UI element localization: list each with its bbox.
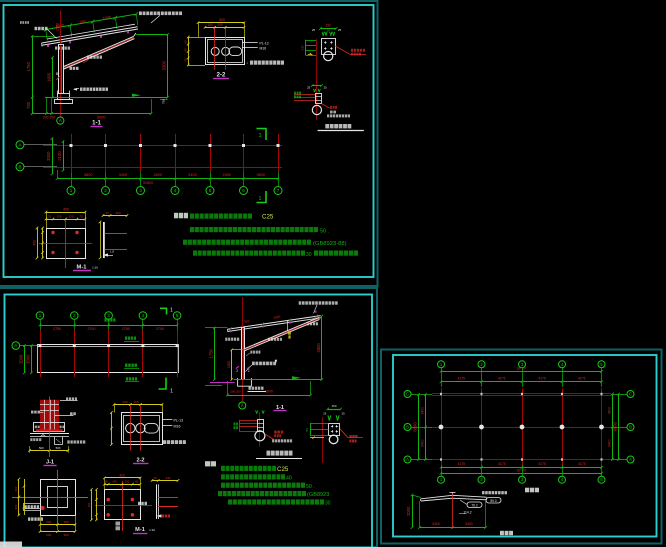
svg-text:114.2: 114.2 [463, 511, 471, 515]
svg-text:300: 300 [46, 520, 51, 524]
svg-text:4175: 4175 [578, 377, 586, 381]
svg-text:2: 2 [480, 362, 483, 367]
svg-text:2700: 2700 [156, 327, 164, 331]
svg-text:3300: 3300 [316, 342, 321, 352]
svg-text:200 200: 200 200 [43, 115, 55, 119]
svg-text:1000: 1000 [102, 15, 111, 20]
svg-text:(GB8923: (GB8923 [307, 492, 329, 498]
svg-text:950: 950 [79, 19, 86, 24]
svg-text:140: 140 [112, 480, 117, 484]
svg-text:4175: 4175 [538, 462, 546, 466]
svg-text:6800: 6800 [413, 422, 418, 432]
svg-text:3300: 3300 [46, 151, 51, 161]
svg-text:25: 25 [323, 412, 327, 416]
svg-text:C: C [406, 391, 409, 396]
svg-text:2: 2 [236, 369, 238, 373]
svg-text:5: 5 [209, 188, 212, 193]
svg-text:3400: 3400 [421, 439, 425, 447]
svg-text:1: 1 [39, 313, 42, 318]
svg-text:60: 60 [184, 40, 188, 44]
svg-text:A: A [406, 457, 409, 462]
svg-text:3800: 3800 [257, 173, 265, 177]
svg-text:1: 1 [440, 477, 443, 482]
svg-text:500: 500 [39, 446, 44, 450]
svg-text:(GB8923-88): (GB8923-88) [313, 241, 347, 247]
svg-text:40: 40 [105, 211, 109, 215]
svg-text:2: 2 [73, 313, 76, 318]
svg-text:1: 1 [70, 188, 73, 193]
svg-text:2800: 2800 [154, 173, 162, 177]
svg-text:4: 4 [561, 362, 564, 367]
svg-text:70: 70 [48, 214, 52, 218]
svg-text:30: 30 [325, 501, 331, 507]
svg-text:C: C [629, 391, 632, 396]
svg-text:2-2: 2-2 [136, 457, 144, 463]
svg-text:100: 100 [122, 400, 127, 404]
svg-text:6800: 6800 [613, 421, 618, 431]
svg-text:16700: 16700 [516, 469, 526, 473]
svg-text:M16: M16 [260, 46, 267, 50]
svg-text:3400: 3400 [608, 407, 612, 415]
svg-text:2750: 2750 [53, 327, 61, 331]
svg-text:4: 4 [561, 477, 564, 482]
svg-text:300: 300 [64, 520, 69, 524]
svg-text:150: 150 [326, 23, 332, 27]
svg-text:125: 125 [68, 214, 73, 218]
svg-text:1.8: 1.8 [110, 250, 114, 254]
svg-text:1: 1 [440, 362, 443, 367]
svg-text:B: B [629, 424, 632, 429]
svg-text:2: 2 [480, 477, 483, 482]
svg-text:40: 40 [286, 476, 292, 482]
svg-text:PL-13: PL-13 [174, 419, 184, 423]
svg-text:B: B [18, 164, 21, 169]
svg-text:1: 1 [259, 196, 262, 202]
svg-text:600: 600 [64, 533, 69, 537]
svg-text:3300: 3300 [25, 354, 30, 364]
svg-text:31600: 31600 [143, 181, 154, 185]
svg-text:500: 500 [56, 446, 61, 450]
svg-text:60: 60 [184, 58, 188, 62]
svg-text:100: 100 [133, 400, 138, 404]
svg-text:1900: 1900 [227, 361, 231, 368]
svg-text:C25: C25 [262, 214, 274, 221]
svg-text:1: 1 [259, 133, 262, 139]
svg-text:7: 7 [277, 188, 280, 193]
svg-text:4175: 4175 [578, 462, 586, 466]
svg-text:A: A [59, 118, 62, 123]
svg-text:1750: 1750 [26, 61, 31, 71]
svg-text:2400: 2400 [188, 173, 196, 177]
svg-text:2-2: 2-2 [217, 73, 226, 79]
svg-text:B: B [406, 424, 409, 429]
svg-text:300: 300 [14, 486, 18, 491]
svg-text:M-1: M-1 [77, 264, 88, 270]
svg-text:4175: 4175 [538, 377, 546, 381]
svg-text:2100: 2100 [57, 151, 62, 161]
svg-text:70: 70 [79, 214, 83, 218]
svg-text:150: 150 [125, 480, 130, 484]
svg-text:3400: 3400 [608, 439, 612, 447]
svg-text:3000: 3000 [265, 390, 273, 394]
svg-text:M16: M16 [174, 425, 181, 429]
svg-text:3400: 3400 [465, 522, 473, 526]
svg-text:400: 400 [87, 502, 91, 507]
svg-text:4175: 4175 [457, 462, 465, 466]
svg-text:C25: C25 [277, 466, 289, 473]
svg-text:2: 2 [248, 369, 250, 373]
svg-text:300: 300 [14, 504, 18, 509]
svg-text:3: 3 [521, 477, 524, 482]
svg-text:25: 25 [338, 28, 342, 32]
svg-text:400: 400 [32, 240, 36, 246]
svg-text:2750: 2750 [122, 327, 130, 331]
svg-text:A: A [18, 142, 22, 147]
svg-text:J-1: J-1 [46, 459, 54, 465]
svg-text:25: 25 [324, 85, 328, 89]
svg-text:200 200: 200 200 [230, 389, 241, 393]
svg-text:2000: 2000 [18, 354, 23, 364]
svg-text:A: A [14, 343, 17, 348]
svg-text:1000: 1000 [273, 315, 281, 320]
svg-text:1500: 1500 [56, 23, 60, 31]
svg-text:100: 100 [217, 23, 223, 27]
svg-text:2400: 2400 [223, 173, 231, 177]
svg-text:4175: 4175 [457, 377, 465, 381]
svg-text:4: 4 [174, 188, 177, 193]
svg-text:3300: 3300 [161, 60, 166, 70]
svg-text:3400: 3400 [119, 173, 127, 177]
svg-text:140: 140 [166, 476, 171, 480]
svg-text:750: 750 [26, 101, 31, 109]
svg-text:1900: 1900 [46, 72, 51, 82]
svg-text:3400: 3400 [432, 522, 440, 526]
svg-text:25: 25 [312, 28, 316, 32]
svg-text:1:10: 1:10 [149, 528, 155, 532]
svg-text:125: 125 [56, 214, 61, 218]
svg-text:A: A [241, 403, 244, 408]
svg-text:3800: 3800 [84, 173, 92, 177]
svg-text:2: 2 [104, 188, 107, 193]
svg-text:600: 600 [46, 533, 51, 537]
svg-text:50 .: 50 . [306, 484, 315, 490]
svg-text:5: 5 [600, 477, 603, 482]
svg-text:6: 6 [242, 188, 245, 193]
svg-text:30: 30 [306, 252, 312, 258]
svg-text:3: 3 [139, 188, 142, 193]
svg-text:420: 420 [119, 473, 125, 477]
svg-text:3: 3 [107, 313, 110, 318]
svg-text:40: 40 [135, 480, 138, 484]
svg-text:1750: 1750 [208, 348, 213, 358]
svg-text:1: 1 [170, 389, 173, 395]
svg-text:M-1: M-1 [135, 527, 145, 533]
svg-text:750: 750 [162, 99, 166, 104]
svg-text:3400: 3400 [421, 407, 425, 415]
svg-text:4175: 4175 [498, 377, 506, 381]
svg-text:76.2: 76.2 [471, 503, 477, 507]
svg-text:1:10: 1:10 [92, 266, 98, 270]
svg-text:40: 40 [105, 480, 108, 484]
svg-text:25: 25 [342, 412, 346, 416]
svg-text:89.0: 89.0 [490, 499, 496, 503]
svg-text:A: A [629, 457, 632, 462]
svg-text:300: 300 [115, 211, 120, 215]
svg-text:1-1: 1-1 [92, 121, 101, 127]
svg-text:2700: 2700 [87, 327, 95, 331]
svg-text:30: 30 [153, 476, 157, 480]
svg-text:16700: 16700 [516, 367, 526, 371]
svg-text:50: 50 [305, 428, 309, 432]
svg-text:2000: 2000 [406, 506, 411, 516]
svg-text:25: 25 [307, 85, 311, 89]
svg-text:50 .: 50 . [320, 228, 329, 234]
svg-text:1: 1 [170, 308, 173, 314]
svg-text:5: 5 [176, 313, 179, 318]
svg-text:5: 5 [600, 362, 603, 367]
svg-text:↓: ↓ [246, 60, 248, 65]
svg-text:140: 140 [301, 45, 305, 50]
svg-text:80: 80 [184, 48, 188, 52]
svg-text:4175: 4175 [498, 462, 506, 466]
svg-text:300: 300 [219, 18, 225, 22]
svg-text:400: 400 [63, 207, 69, 211]
svg-text:3000: 3000 [97, 114, 107, 119]
svg-text:150: 150 [331, 404, 336, 408]
svg-text:PL-13: PL-13 [260, 41, 269, 45]
svg-text:950: 950 [244, 319, 250, 324]
svg-text:4: 4 [142, 313, 145, 318]
svg-text:100: 100 [207, 23, 213, 27]
